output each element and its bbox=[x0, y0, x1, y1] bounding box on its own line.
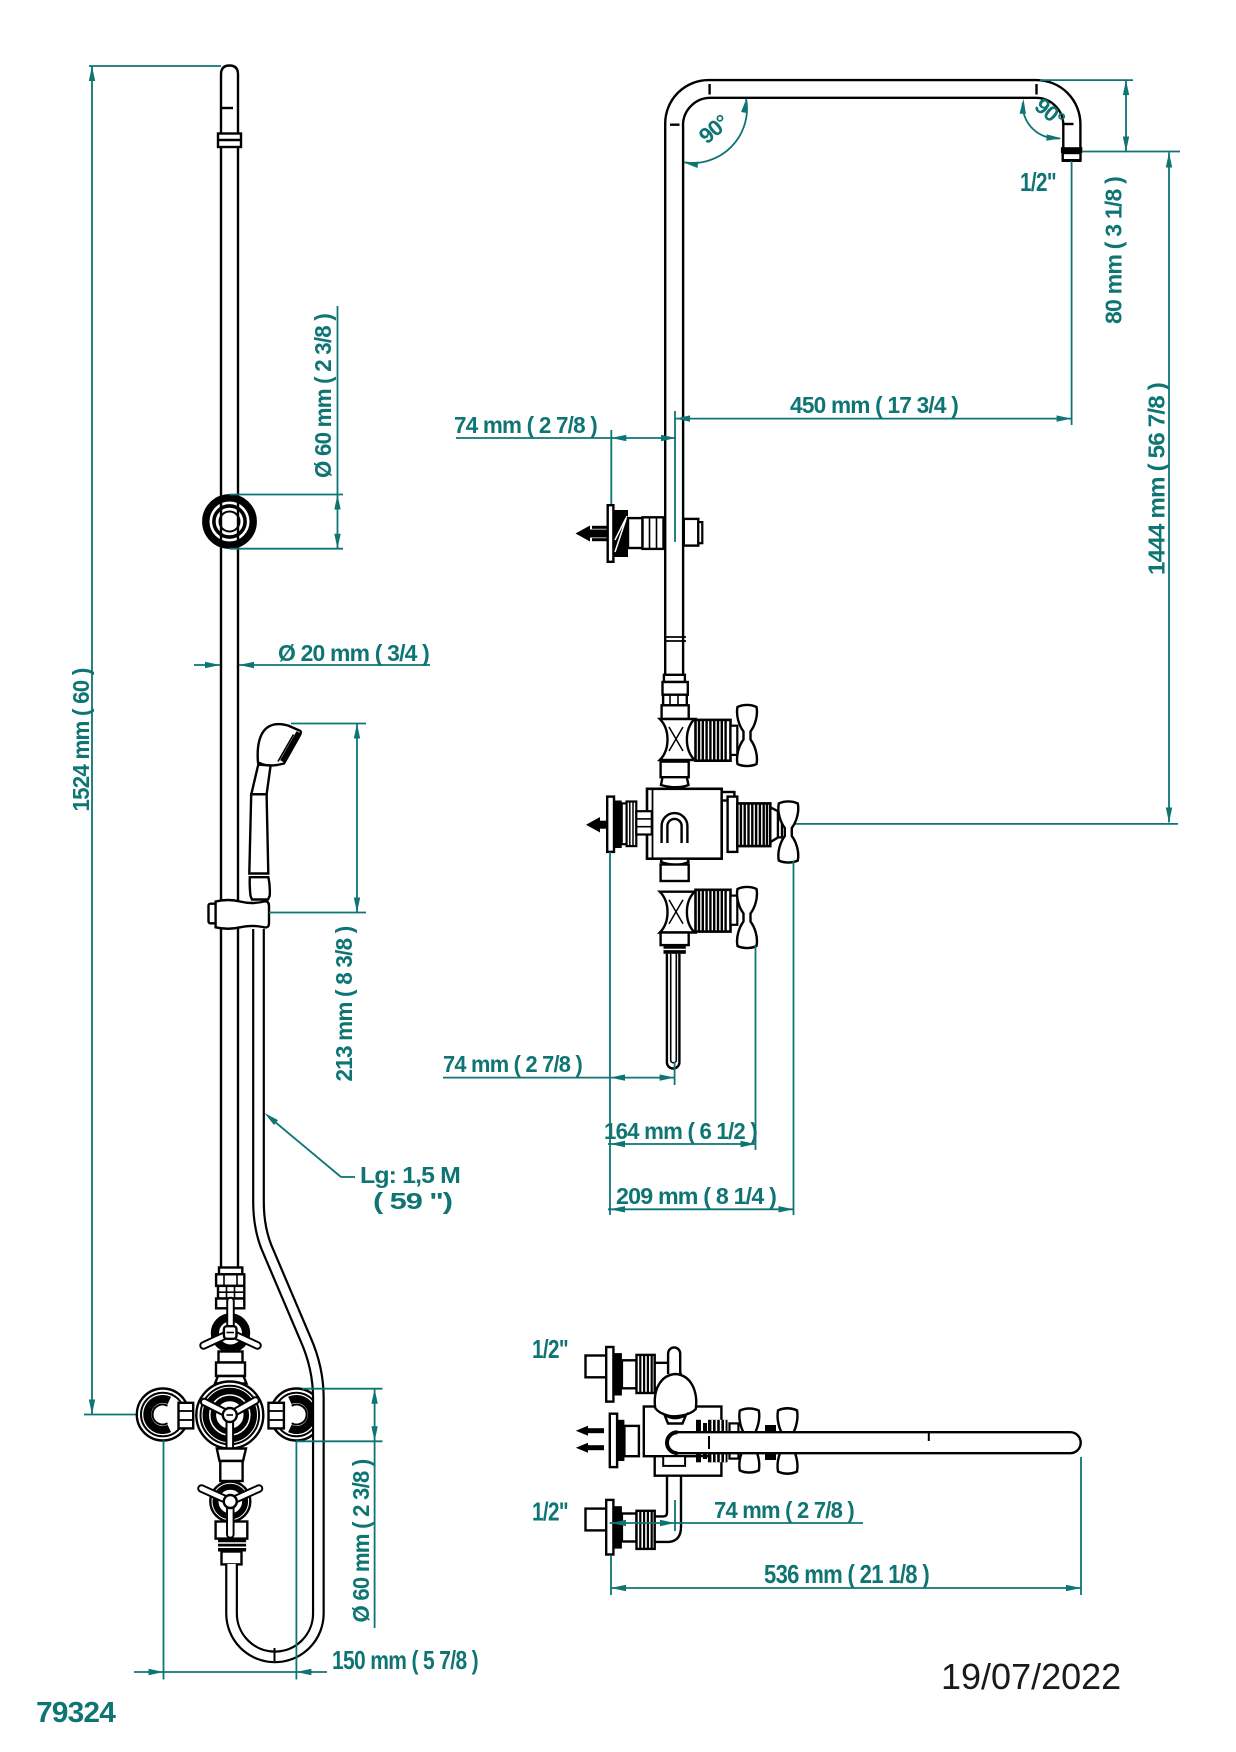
svg-text:1/2": 1/2" bbox=[1020, 167, 1056, 197]
svg-text:1444 mm ( 56 7/8 ): 1444 mm ( 56 7/8 ) bbox=[1144, 383, 1170, 575]
svg-text:450 mm ( 17 3/4 ): 450 mm ( 17 3/4 ) bbox=[790, 392, 958, 418]
svg-text:74 mm ( 2 7/8 ): 74 mm ( 2 7/8 ) bbox=[714, 1497, 854, 1523]
svg-text:209 mm ( 8 1/4 ): 209 mm ( 8 1/4 ) bbox=[616, 1183, 776, 1209]
svg-text:19/07/2022: 19/07/2022 bbox=[941, 1656, 1121, 1697]
svg-text:536 mm ( 21 1/8 ): 536 mm ( 21 1/8 ) bbox=[764, 1559, 929, 1589]
svg-text:80 mm ( 3 1/8 ): 80 mm ( 3 1/8 ) bbox=[1101, 177, 1127, 324]
svg-text:Ø 60 mm ( 2 3/8 ): Ø 60 mm ( 2 3/8 ) bbox=[348, 1459, 374, 1622]
svg-text:213 mm ( 8 3/8 ): 213 mm ( 8 3/8 ) bbox=[331, 926, 357, 1081]
svg-text:74 mm ( 2 7/8 ): 74 mm ( 2 7/8 ) bbox=[443, 1051, 582, 1077]
svg-text:164 mm ( 6 1/2 ): 164 mm ( 6 1/2 ) bbox=[604, 1118, 757, 1144]
svg-text:Ø 60 mm ( 2 3/8 ): Ø 60 mm ( 2 3/8 ) bbox=[310, 314, 336, 478]
svg-text:1/2": 1/2" bbox=[532, 1497, 568, 1527]
svg-text:79324: 79324 bbox=[36, 1697, 116, 1729]
svg-text:1/2": 1/2" bbox=[532, 1334, 568, 1364]
svg-text:( 59 "): ( 59 ") bbox=[373, 1188, 452, 1214]
svg-text:74 mm ( 2 7/8 ): 74 mm ( 2 7/8 ) bbox=[454, 412, 597, 438]
svg-text:150 mm ( 5 7/8 ): 150 mm ( 5 7/8 ) bbox=[332, 1645, 478, 1675]
svg-text:Ø 20 mm ( 3/4 ): Ø 20 mm ( 3/4 ) bbox=[278, 640, 429, 666]
svg-text:1524 mm ( 60 ): 1524 mm ( 60 ) bbox=[68, 668, 94, 811]
svg-text:Lg: 1,5 M: Lg: 1,5 M bbox=[360, 1162, 460, 1188]
